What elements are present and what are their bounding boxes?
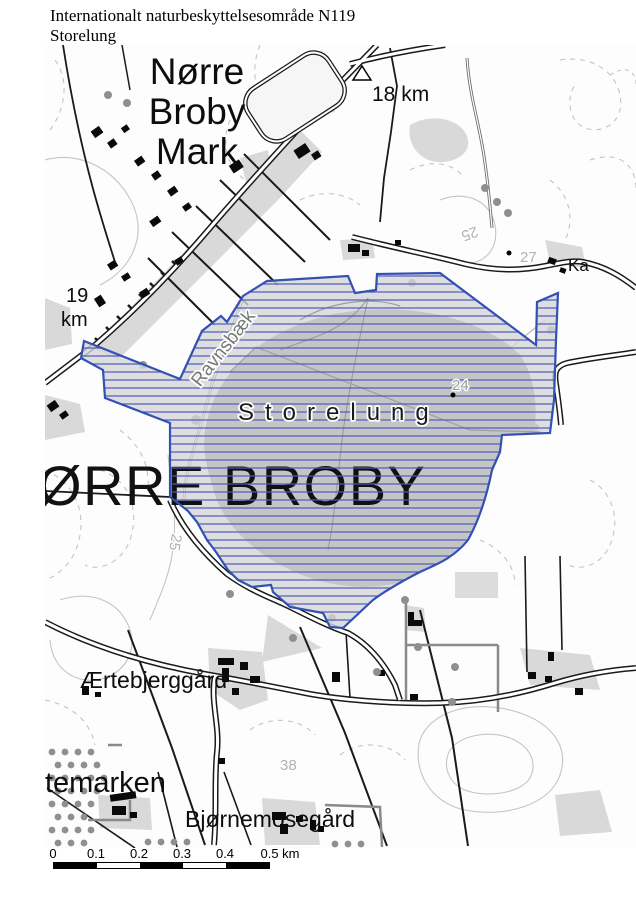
place-label-broby: Broby xyxy=(149,91,246,132)
contour-label-38: 38 xyxy=(280,757,297,774)
distance-label-19km: km xyxy=(61,309,88,331)
racetrack-loop xyxy=(238,46,351,149)
scale-tick-label: 0.1 xyxy=(87,846,105,861)
scale-bar-segments xyxy=(53,862,270,869)
place-label-mark: Mark xyxy=(156,131,239,172)
scale-tick-label: 0.3 xyxy=(173,846,191,861)
field-label-temarken: temarken xyxy=(45,767,166,799)
distance-label-18km: 18 km xyxy=(372,83,429,106)
place-label-ka: Ka xyxy=(568,256,589,275)
distance-label-19: 19 xyxy=(66,285,88,307)
scale-tick-label: 0.2 xyxy=(130,846,148,861)
farm-label-aertebjerggaard: Ærtebjerggård xyxy=(80,667,227,693)
contour-label-25-east: 25 xyxy=(459,222,480,244)
spot-height-dot-27 xyxy=(507,251,512,256)
page: Internationalt naturbeskyttelsesområde N… xyxy=(0,0,636,900)
scale-tick-label: 0.4 xyxy=(216,846,234,861)
contour-label-27: 27 xyxy=(520,249,537,266)
contour-label-25-west: 25 xyxy=(165,533,185,552)
scale-end-label: 0.5 km xyxy=(260,846,299,861)
contour-label-24: 24 xyxy=(452,377,469,394)
scale-bar: 0 0.1 0.2 0.3 0.4 0.5 km xyxy=(0,0,636,52)
topographic-map: ØRRE BROBY Nørre Broby Mark 18 km 19 km … xyxy=(45,45,636,848)
pond-patch xyxy=(455,572,498,598)
area-label-storelung: Storelung xyxy=(238,399,440,426)
place-label-norre: Nørre xyxy=(150,51,245,92)
map-canvas: ØRRE BROBY Nørre Broby Mark 18 km 19 km … xyxy=(45,45,636,848)
scale-tick-label: 0 xyxy=(49,846,56,861)
spot-height-dot-24 xyxy=(451,393,456,398)
farm-label-bjoernemosegaard: Bjørnemosegård xyxy=(185,806,355,832)
